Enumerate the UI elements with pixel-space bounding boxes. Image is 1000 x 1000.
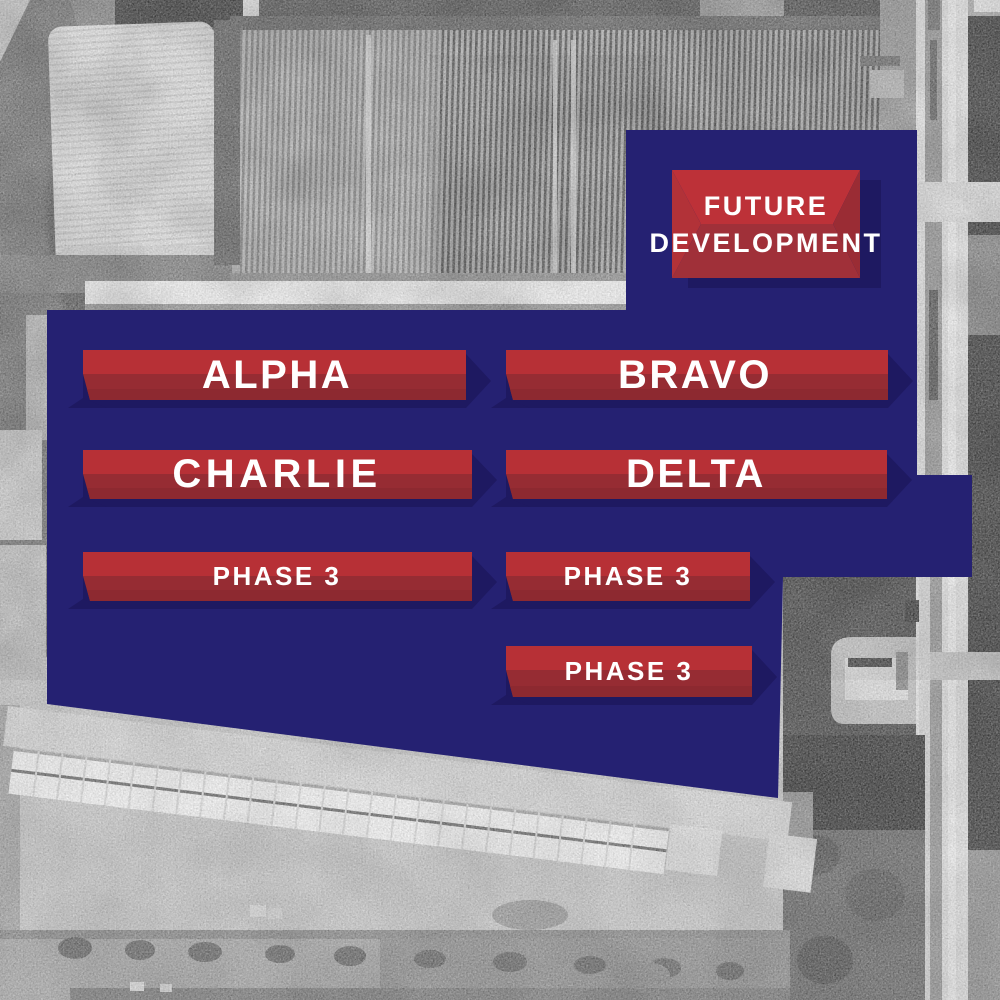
svg-text:PHASE 3: PHASE 3 bbox=[213, 561, 342, 591]
svg-text:PHASE 3: PHASE 3 bbox=[564, 561, 693, 591]
svg-text:DEVELOPMENT: DEVELOPMENT bbox=[649, 228, 882, 258]
svg-text:PHASE 3: PHASE 3 bbox=[565, 656, 694, 686]
svg-text:ALPHA: ALPHA bbox=[202, 353, 352, 397]
svg-text:CHARLIE: CHARLIE bbox=[172, 452, 381, 496]
svg-text:FUTURE: FUTURE bbox=[704, 191, 829, 221]
svg-text:DELTA: DELTA bbox=[626, 452, 766, 496]
svg-text:BRAVO: BRAVO bbox=[618, 353, 772, 397]
